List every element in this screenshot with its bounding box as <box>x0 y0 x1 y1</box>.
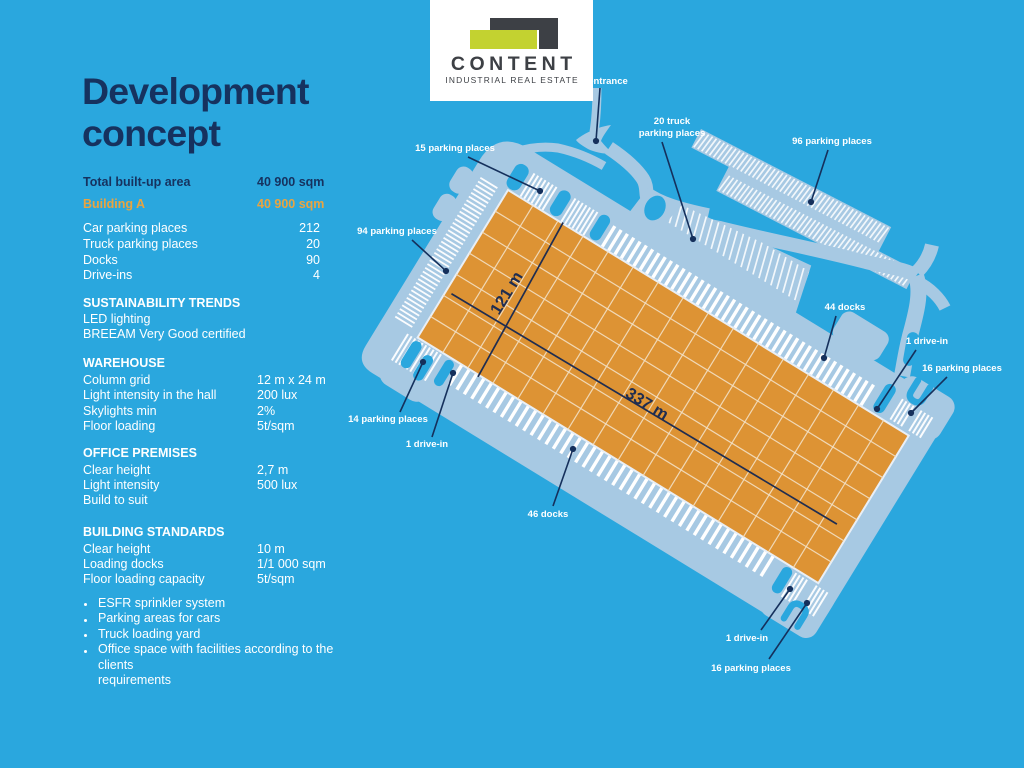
svg-text:94 parking places: 94 parking places <box>357 226 437 237</box>
svg-text:1 drive-in: 1 drive-in <box>906 336 948 347</box>
svg-text:parking places: parking places <box>639 128 706 139</box>
svg-text:16 parking places: 16 parking places <box>711 663 791 674</box>
svg-text:14 parking places: 14 parking places <box>348 414 428 425</box>
svg-text:entrance: entrance <box>588 76 628 87</box>
svg-text:16 parking places: 16 parking places <box>922 363 1002 374</box>
svg-text:15 parking places: 15 parking places <box>415 143 495 154</box>
svg-text:1 drive-in: 1 drive-in <box>726 633 768 644</box>
svg-text:1 drive-in: 1 drive-in <box>406 439 448 450</box>
svg-text:44 docks: 44 docks <box>825 302 866 313</box>
svg-text:20 truck: 20 truck <box>654 116 691 127</box>
svg-text:46 docks: 46 docks <box>528 509 569 520</box>
svg-text:96 parking places: 96 parking places <box>792 136 872 147</box>
